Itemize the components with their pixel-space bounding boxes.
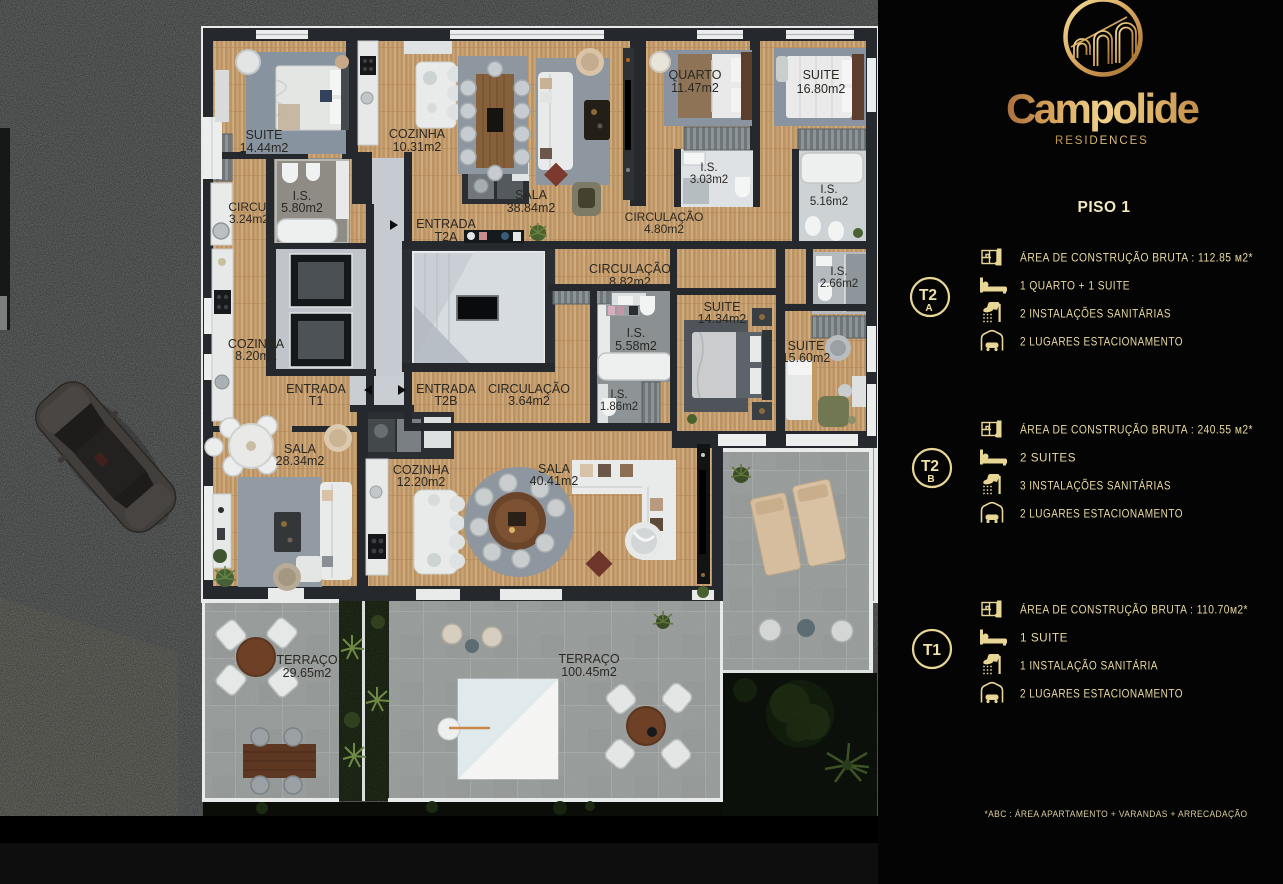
svg-text:I.S.: I.S. xyxy=(700,162,717,174)
svg-text:SUITE: SUITE xyxy=(803,68,840,82)
svg-text:I.S.: I.S. xyxy=(830,266,847,278)
svg-text:1 QUARTO + 1 SUITE: 1 QUARTO + 1 SUITE xyxy=(1020,279,1130,293)
svg-text:B: B xyxy=(927,474,934,485)
svg-text:T1: T1 xyxy=(923,642,941,659)
svg-text:4.80m2: 4.80m2 xyxy=(644,222,684,236)
svg-text:5.58m2: 5.58m2 xyxy=(615,339,657,353)
svg-text:QUARTO: QUARTO xyxy=(668,68,721,82)
svg-text:38.84m2: 38.84m2 xyxy=(507,201,556,215)
svg-text:1 SUITE: 1 SUITE xyxy=(1020,631,1068,645)
svg-text:8.20m2: 8.20m2 xyxy=(235,349,277,363)
svg-text:I.S.: I.S. xyxy=(820,184,837,196)
svg-text:ENTRADA: ENTRADA xyxy=(416,217,476,231)
svg-text:COZINHA: COZINHA xyxy=(389,127,446,141)
svg-text:ÁREA DE CONSTRUÇÃO BRUTA : 11: ÁREA DE CONSTRUÇÃO BRUTA : 110.70м2* xyxy=(1020,602,1248,617)
svg-text:1 INSTALAÇÃO SANITÁRIA: 1 INSTALAÇÃO SANITÁRIA xyxy=(1020,658,1158,673)
svg-text:I.S.: I.S. xyxy=(610,389,627,401)
svg-text:8.82m2: 8.82m2 xyxy=(609,275,651,289)
svg-text:3 INSTALAÇÕES SANITÁRIAS: 3 INSTALAÇÕES SANITÁRIAS xyxy=(1020,478,1171,493)
svg-text:TERRAÇO: TERRAÇO xyxy=(276,653,337,667)
svg-text:100.45m2: 100.45m2 xyxy=(561,665,617,679)
svg-text:TERRAÇO: TERRAÇO xyxy=(558,652,619,666)
svg-text:RESIDENCES: RESIDENCES xyxy=(1055,135,1151,147)
svg-text:16.80m2: 16.80m2 xyxy=(797,82,846,96)
svg-text:A: A xyxy=(925,303,932,314)
svg-text:12.20m2: 12.20m2 xyxy=(397,475,446,489)
svg-text:T2A: T2A xyxy=(435,230,459,244)
svg-text:5.16m2: 5.16m2 xyxy=(810,196,848,208)
svg-text:SALA: SALA xyxy=(515,188,548,202)
svg-text:ÁREA DE CONSTRUÇÃO BRUTA : 11: ÁREA DE CONSTRUÇÃO BRUTA : 112.85 м2* xyxy=(1020,250,1253,265)
svg-text:2 LUGARES ESTACIONAMENTO: 2 LUGARES ESTACIONAMENTO xyxy=(1020,687,1183,701)
svg-text:ÁREA DE CONSTRUÇÃO BRUTA : 24: ÁREA DE CONSTRUÇÃO BRUTA : 240.55 м2* xyxy=(1020,422,1253,437)
svg-text:T2B: T2B xyxy=(435,394,458,408)
svg-text:3.24m2: 3.24m2 xyxy=(229,212,269,226)
svg-text:5.80m2: 5.80m2 xyxy=(281,201,323,215)
svg-text:3.03m2: 3.03m2 xyxy=(690,174,728,186)
svg-text:Campolide: Campolide xyxy=(1006,85,1200,132)
svg-text:1.86m2: 1.86m2 xyxy=(600,401,638,413)
svg-text:PISO 1: PISO 1 xyxy=(1078,199,1131,216)
svg-text:I.S.: I.S. xyxy=(627,326,646,340)
svg-text:T2: T2 xyxy=(921,458,939,475)
svg-text:*ABC : ÁREA APARTAMENTO + VAR: *ABC : ÁREA APARTAMENTO + VARANDAS + ARR… xyxy=(985,809,1248,820)
svg-text:14.44m2: 14.44m2 xyxy=(240,141,289,155)
svg-text:CIRCULAÇÃO: CIRCULAÇÃO xyxy=(589,262,671,276)
svg-text:3.64m2: 3.64m2 xyxy=(508,394,550,408)
svg-text:2.66m2: 2.66m2 xyxy=(820,278,858,290)
svg-text:14.34m2: 14.34m2 xyxy=(698,312,747,326)
svg-text:15.60m2: 15.60m2 xyxy=(782,351,831,365)
svg-text:T2: T2 xyxy=(919,287,937,304)
svg-text:T1: T1 xyxy=(309,394,324,408)
svg-text:10.31m2: 10.31m2 xyxy=(393,140,442,154)
svg-text:2 LUGARES ESTACIONAMENTO: 2 LUGARES ESTACIONAMENTO xyxy=(1020,335,1183,349)
svg-text:40.41m2: 40.41m2 xyxy=(530,474,579,488)
svg-text:28.34m2: 28.34m2 xyxy=(276,454,325,468)
svg-text:2 LUGARES ESTACIONAMENTO: 2 LUGARES ESTACIONAMENTO xyxy=(1020,507,1183,521)
svg-text:29.65m2: 29.65m2 xyxy=(283,666,332,680)
svg-text:SUITE: SUITE xyxy=(246,128,283,142)
svg-text:11.47m2: 11.47m2 xyxy=(671,81,719,95)
svg-text:2 INSTALAÇÕES SANITÁRIAS: 2 INSTALAÇÕES SANITÁRIAS xyxy=(1020,306,1171,321)
svg-text:2 SUITES: 2 SUITES xyxy=(1020,451,1076,465)
